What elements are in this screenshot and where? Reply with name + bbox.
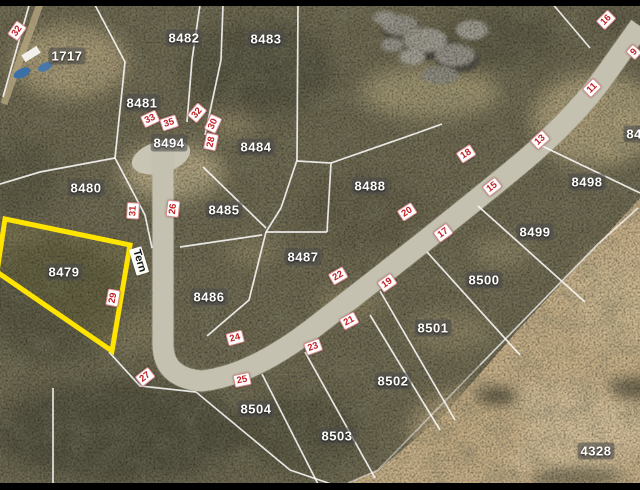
parcel-label-8483: 8483 bbox=[248, 31, 285, 48]
top-letterbox-bar bbox=[0, 0, 640, 6]
parcel-label-8486: 8486 bbox=[191, 289, 228, 306]
parcel-label-8499: 8499 bbox=[517, 224, 554, 241]
parcel-label-8481: 8481 bbox=[124, 95, 161, 112]
parcel-label-8504: 8504 bbox=[238, 401, 275, 418]
parcel-label-8487: 8487 bbox=[285, 249, 322, 266]
map-viewport[interactable]: 1717848284838481849484848480848584888498… bbox=[0, 0, 640, 490]
parcel-label-8494: 8494 bbox=[151, 135, 188, 152]
parcel-label-8498: 8498 bbox=[569, 174, 606, 191]
bottom-letterbox-bar bbox=[0, 483, 640, 490]
parcel-label-8503: 8503 bbox=[319, 428, 356, 445]
parcel-label-8502: 8502 bbox=[375, 373, 412, 390]
parcel-label-8500: 8500 bbox=[466, 272, 503, 289]
parcel-label-8482: 8482 bbox=[166, 30, 203, 47]
street-number-31: 31 bbox=[126, 202, 140, 219]
aerial-map[interactable] bbox=[0, 0, 640, 490]
aerial-photo bbox=[0, 0, 640, 490]
parcel-label-4328: 4328 bbox=[578, 443, 615, 460]
street-number-26: 26 bbox=[166, 200, 181, 218]
parcel-label-8488: 8488 bbox=[352, 178, 389, 195]
parcel-label-849: 849 bbox=[623, 126, 640, 143]
parcel-label-8501: 8501 bbox=[415, 320, 452, 337]
parcel-label-8480: 8480 bbox=[68, 180, 105, 197]
parcel-label-8485: 8485 bbox=[206, 202, 243, 219]
parcel-label-8479: 8479 bbox=[46, 264, 83, 281]
parcel-label-1717: 1717 bbox=[49, 48, 86, 65]
parcel-label-8484: 8484 bbox=[238, 139, 275, 156]
